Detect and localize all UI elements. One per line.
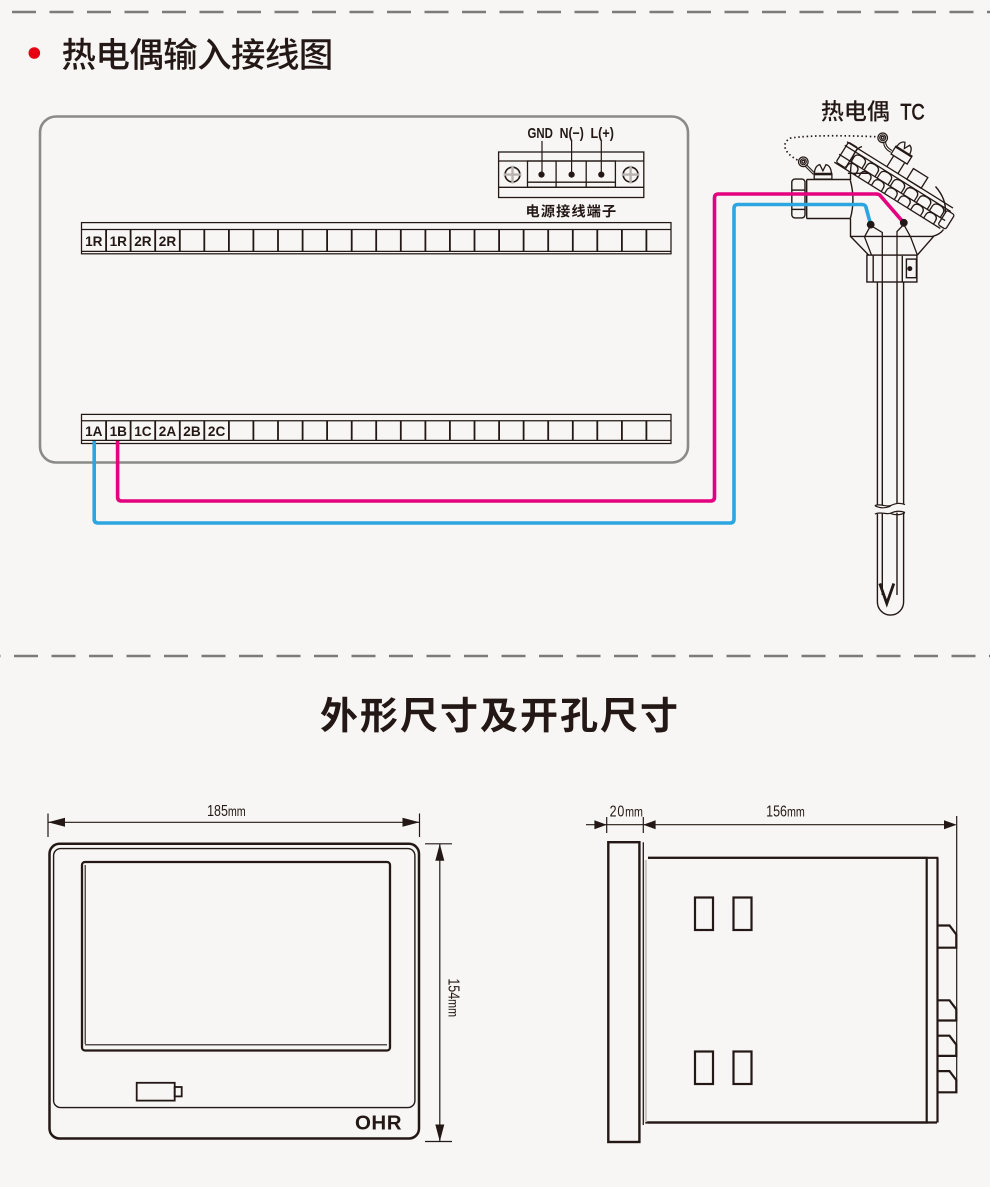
svg-text:185mm: 185mm — [207, 802, 246, 820]
svg-text:TC: TC — [900, 100, 924, 125]
svg-text:2R: 2R — [134, 233, 151, 249]
svg-text:OHR: OHR — [355, 1112, 402, 1135]
svg-text:L(+): L(+) — [591, 126, 614, 142]
svg-text:154mm: 154mm — [445, 978, 463, 1017]
svg-text:N(−): N(−) — [560, 126, 584, 142]
svg-text:GND: GND — [528, 126, 554, 142]
svg-text:1R: 1R — [110, 233, 127, 249]
svg-text:2C: 2C — [208, 423, 225, 439]
svg-text:2A: 2A — [159, 423, 176, 439]
svg-text:1A: 1A — [85, 423, 102, 439]
svg-text:2R: 2R — [159, 233, 176, 249]
svg-text:2B: 2B — [183, 423, 200, 439]
svg-text:1C: 1C — [134, 423, 151, 439]
svg-text:1B: 1B — [110, 423, 127, 439]
svg-text:20mm: 20mm — [610, 802, 643, 820]
svg-text:156mm: 156mm — [766, 802, 805, 820]
svg-text:1R: 1R — [85, 233, 102, 249]
